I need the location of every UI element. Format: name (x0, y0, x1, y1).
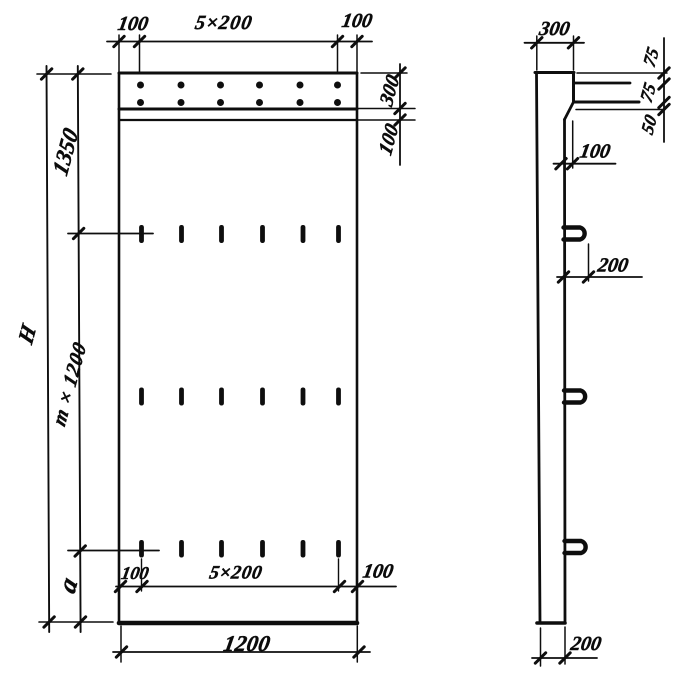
svg-text:100: 100 (578, 141, 612, 163)
svg-text:1200: 1200 (222, 631, 273, 656)
svg-text:100: 100 (361, 561, 395, 583)
svg-text:100: 100 (120, 563, 150, 583)
svg-text:m × 1200: m × 1200 (49, 338, 91, 429)
svg-text:50: 50 (638, 112, 661, 138)
svg-text:a: a (53, 573, 83, 598)
svg-text:5×200: 5×200 (208, 563, 264, 584)
svg-text:100: 100 (340, 10, 374, 32)
svg-text:200: 200 (595, 255, 630, 277)
svg-text:75: 75 (640, 44, 663, 70)
svg-text:5×200: 5×200 (193, 12, 254, 34)
svg-text:100: 100 (375, 120, 403, 158)
svg-text:300: 300 (537, 18, 572, 40)
svg-text:200: 200 (568, 633, 603, 655)
svg-text:100: 100 (116, 13, 150, 35)
svg-text:H: H (13, 320, 41, 349)
